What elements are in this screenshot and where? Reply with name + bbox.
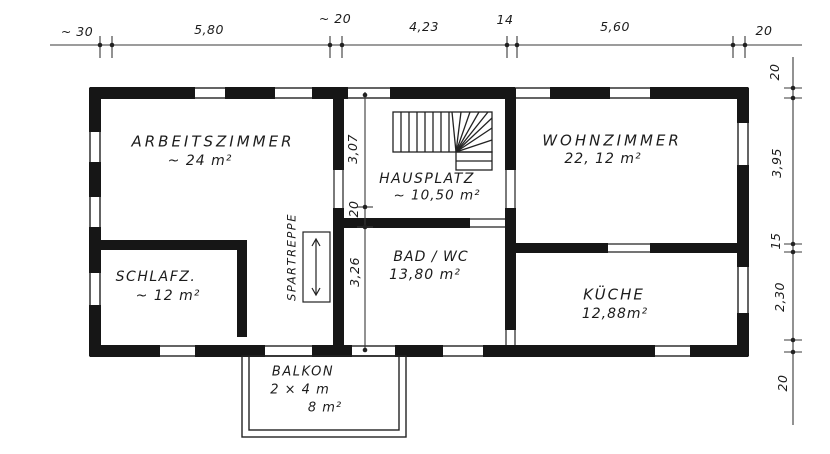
dim-right-230: 2,30 xyxy=(774,282,787,312)
dimension-line-top xyxy=(50,36,802,58)
room-area-wohnzimmer: 22, 12 m² xyxy=(564,152,641,166)
dim-top-20b: 20 xyxy=(756,25,773,38)
room-label-bad-wc: BAD / WC xyxy=(393,250,468,264)
room-area-bad-wc: 13,80 m² xyxy=(389,268,461,282)
dim-top-560: 5,60 xyxy=(600,21,630,34)
room-label-wohnzimmer: WOHNZIMMER xyxy=(542,134,682,149)
stair-spartreppe xyxy=(303,232,330,302)
dimension-line-right xyxy=(784,57,802,425)
dim-middle-326: 3,26 xyxy=(349,257,362,287)
room-area-hausplatz: ~ 10,50 m² xyxy=(393,189,480,203)
room-label-arbeitszimmer: ARBEITSZIMMER xyxy=(131,135,294,150)
room-area-arbeitszimmer: ~ 24 m² xyxy=(168,154,233,168)
floor-plan: ARBEITSZIMMER ~ 24 m² SCHLAFZ. ~ 12 m² H… xyxy=(0,0,830,454)
dim-middle-20: 20 xyxy=(348,201,361,218)
dim-middle-307: 3,07 xyxy=(347,134,360,164)
dim-right-395: 3,95 xyxy=(771,148,784,178)
room-label-kueche: KÜCHE xyxy=(583,288,645,303)
dim-top-30: ~ 30 xyxy=(61,26,93,39)
dim-top-14: 14 xyxy=(497,14,514,27)
room-size-balkon: 2 × 4 m xyxy=(270,384,330,397)
dim-top-20a: ~ 20 xyxy=(319,13,351,26)
stair-winder xyxy=(393,112,492,170)
stair-label-spartreppe: SPARTREPPE xyxy=(286,213,298,301)
dim-right-20b: 20 xyxy=(777,375,790,392)
room-area-balkon: 8 m² xyxy=(308,402,342,415)
room-area-schlafzimmer: ~ 12 m² xyxy=(136,289,201,303)
room-label-hausplatz: HAUSPLATZ xyxy=(379,172,475,186)
room-area-kueche: 12,88m² xyxy=(582,307,648,321)
dim-right-20a: 20 xyxy=(769,64,782,81)
floor-plan-drawing xyxy=(0,0,830,454)
room-label-balkon: BALKON xyxy=(272,366,334,379)
room-label-schlafzimmer: SCHLAFZ. xyxy=(116,270,197,284)
dim-top-580: 5,80 xyxy=(194,24,224,37)
dim-right-15: 15 xyxy=(770,233,783,250)
dim-top-423: 4,23 xyxy=(409,21,439,34)
